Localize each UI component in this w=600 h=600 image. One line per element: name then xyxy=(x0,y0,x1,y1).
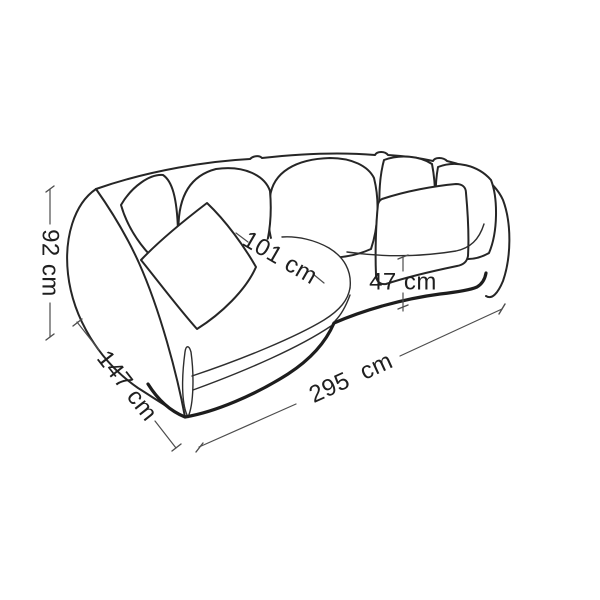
left-arm-tip-seam xyxy=(183,347,193,417)
dimension-overall-height: 92 cm xyxy=(37,186,64,340)
overall-width-label: 295 cm xyxy=(305,347,397,408)
product-dimension-diagram: 92 cm 147 cm 101 cm 47 cm 295 cm xyxy=(0,0,600,600)
sofa-diagram-canvas: 92 cm 147 cm 101 cm 47 cm 295 cm xyxy=(0,0,600,600)
overall-height-label: 92 cm xyxy=(37,229,64,297)
seat-height-label: 47 cm xyxy=(369,269,437,296)
